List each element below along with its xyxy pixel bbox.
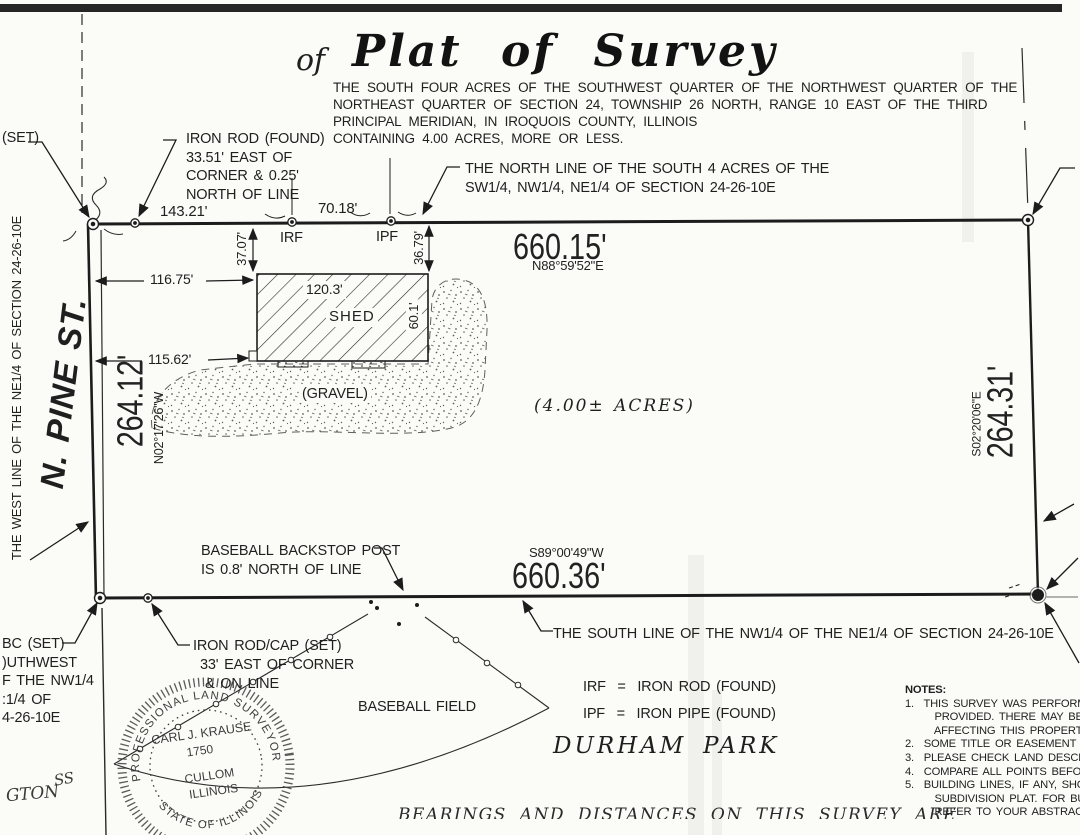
east-boundary-line	[1028, 220, 1038, 595]
set-monument-label: (SET)	[2, 129, 39, 147]
legal-description: THE SOUTH FOUR ACRES OF THE SOUTHWEST QU…	[333, 79, 1017, 147]
notes-line: PROVIDED. THERE MAY BE EA	[905, 711, 1080, 725]
note-line: THE NORTH LINE OF THE SOUTH 4 ACRES OF T…	[465, 160, 829, 179]
note-line: IRON ROD (FOUND)	[186, 130, 325, 149]
notes-line: 1. THIS SURVEY WAS PERFORME	[905, 698, 1080, 712]
south-line-note: THE SOUTH LINE OF THE NW1/4 OF THE NE1/4…	[553, 625, 1054, 643]
note-line: :1/4 OF	[2, 691, 94, 710]
south-distance: 660.36'	[512, 553, 606, 598]
note-line: BASEBALL BACKSTOP POST	[201, 542, 400, 561]
notes-line: 5. BUILDING LINES, IF ANY, SHO	[905, 779, 1080, 793]
title-of-prefix: of	[296, 42, 325, 80]
parcel-area-label: (4.00± ACRES)	[534, 396, 695, 417]
dim-143-21: 143.21'	[160, 203, 207, 222]
section-line-dashed	[1022, 48, 1028, 212]
legal-description-line: NORTHEAST QUARTER OF SECTION 24, TOWNSHI…	[333, 96, 1017, 113]
west-distance: 264.12'	[108, 355, 153, 447]
baseball-field	[114, 600, 549, 788]
iron-rod-found-note: IRON ROD (FOUND) 33.51' EAST OF CORNER &…	[186, 130, 325, 204]
dim-36-79: 36.79'	[411, 231, 427, 265]
gravel-label: (GRAVEL)	[299, 385, 371, 403]
legal-description-line: THE SOUTH FOUR ACRES OF THE SOUTHWEST QU…	[333, 79, 1017, 96]
corner-tick-marks	[63, 229, 123, 241]
shed-width-dim: 120.3'	[303, 281, 346, 299]
line-break-symbol	[92, 177, 106, 222]
notes-block: NOTES: 1. THIS SURVEY WAS PERFORME PROVI…	[905, 684, 1080, 820]
notes-line: 4. COMPARE ALL POINTS BEFORE	[905, 766, 1080, 780]
dim-115-62: 115.62'	[148, 351, 191, 369]
note-line: IS 0.8' NORTH OF LINE	[201, 561, 400, 580]
notes-line: AFFECTING THIS PROPERTY W	[905, 725, 1080, 739]
baseball-field-label: BASEBALL FIELD	[358, 698, 476, 716]
notes-line: 3. PLEASE CHECK LAND DESCRIP	[905, 752, 1080, 766]
note-line: F THE NW1/4	[2, 672, 94, 691]
street-edge-line-south	[102, 608, 106, 835]
east-bearing: S02°20'06"E	[970, 391, 985, 456]
sw-corner-note-clipped: BC (SET) )UTHWEST F THE NW1/4 :1/4 OF 4-…	[2, 635, 94, 728]
ipf-marker-label: IPF	[376, 228, 398, 246]
shed-label: SHED	[326, 308, 378, 327]
plat-of-survey-document: PROFESSIONAL LAND SURVEYOR STATE OF ILLI…	[0, 0, 1080, 835]
note-line: 33' EAST OF CORNER	[193, 656, 354, 675]
shed-stoop-left	[278, 361, 308, 367]
north-bearing: N88°59'52"E	[532, 258, 604, 274]
notes-line: 2. SOME TITLE OR EASEMENT DO	[905, 738, 1080, 752]
surveyor-seal: PROFESSIONAL LAND SURVEYOR STATE OF ILLI…	[111, 671, 301, 835]
note-line: )UTHWEST	[2, 654, 94, 673]
dim-70-18: 70.18'	[318, 200, 357, 219]
note-line: NORTH OF LINE	[186, 186, 325, 205]
page-title: Plat of Survey	[352, 24, 778, 79]
outfield-arc	[114, 708, 549, 788]
west-bearing: N02°17'26"W	[152, 392, 168, 464]
note-line: 4-26-10E	[2, 709, 94, 728]
backstop-note: BASEBALL BACKSTOP POST IS 0.8' NORTH OF …	[201, 542, 400, 580]
note-line: IRON ROD/CAP (SET)	[193, 637, 354, 656]
west-boundary-line	[88, 224, 96, 600]
park-name-word2: PARK	[703, 732, 779, 761]
legend-irf: IRF = IRON ROD (FOUND)	[583, 678, 776, 696]
dim-116-75: 116.75'	[150, 271, 193, 289]
park-name-word1: DURHAM	[553, 732, 686, 761]
legend-ipf: IPF = IRON PIPE (FOUND)	[583, 705, 776, 723]
shed-depth-dim: 60.1'	[406, 300, 422, 333]
iron-rod-cap-note: IRON ROD/CAP (SET) 33' EAST OF CORNER & …	[193, 637, 354, 694]
note-line: & ON LINE	[193, 675, 354, 694]
bottom-clipped-text-wrap: BEARINGS AND DISTANCES ON THIS SURVEY AR…	[398, 805, 957, 819]
irf-marker-label: IRF	[280, 229, 303, 247]
corner-ss-label: SS	[53, 768, 76, 790]
dim-37-07: 37.07'	[234, 232, 250, 266]
legal-description-line: CONTAINING 4.00 ACRES, MORE OR LESS.	[333, 130, 1017, 147]
legal-description-line: PRINCIPAL MERIDIAN, IN IROQUOIS COUNTY, …	[333, 113, 1017, 130]
bottom-clipped-text: BEARINGS AND DISTANCES ON THIS SURVEY AR…	[398, 805, 957, 819]
note-line: CORNER & 0.25'	[186, 167, 325, 186]
note-line: SW1/4, NW1/4, NE1/4 OF SECTION 24-26-10E	[465, 179, 829, 198]
shed-stoop-small	[249, 351, 257, 361]
seal-license-number: 1750	[186, 742, 215, 760]
notes-heading: NOTES:	[905, 684, 1080, 698]
note-line: BC (SET)	[2, 635, 94, 654]
shed-stoop-right	[352, 361, 385, 368]
note-line: 33.51' EAST OF	[186, 149, 325, 168]
north-line-note: THE NORTH LINE OF THE SOUTH 4 ACRES OF T…	[465, 160, 829, 198]
scan-edge-bar	[0, 4, 1062, 12]
street-edge-line	[101, 230, 104, 596]
west-line-note: THE WEST LINE OF THE NE1/4 OF SECTION 24…	[9, 216, 25, 560]
